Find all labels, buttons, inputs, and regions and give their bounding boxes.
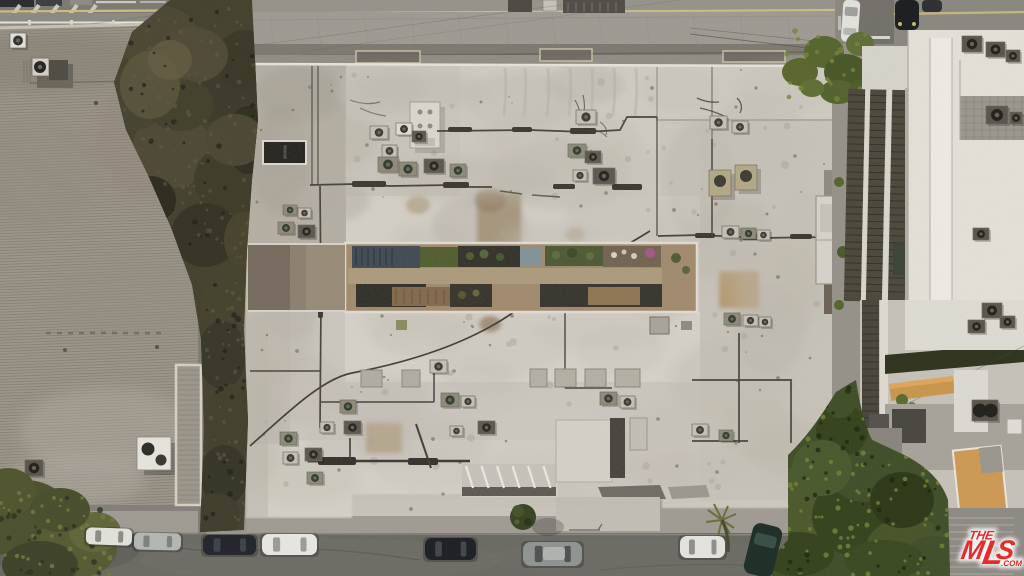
svg-text:.COM: .COM: [1000, 559, 1023, 568]
